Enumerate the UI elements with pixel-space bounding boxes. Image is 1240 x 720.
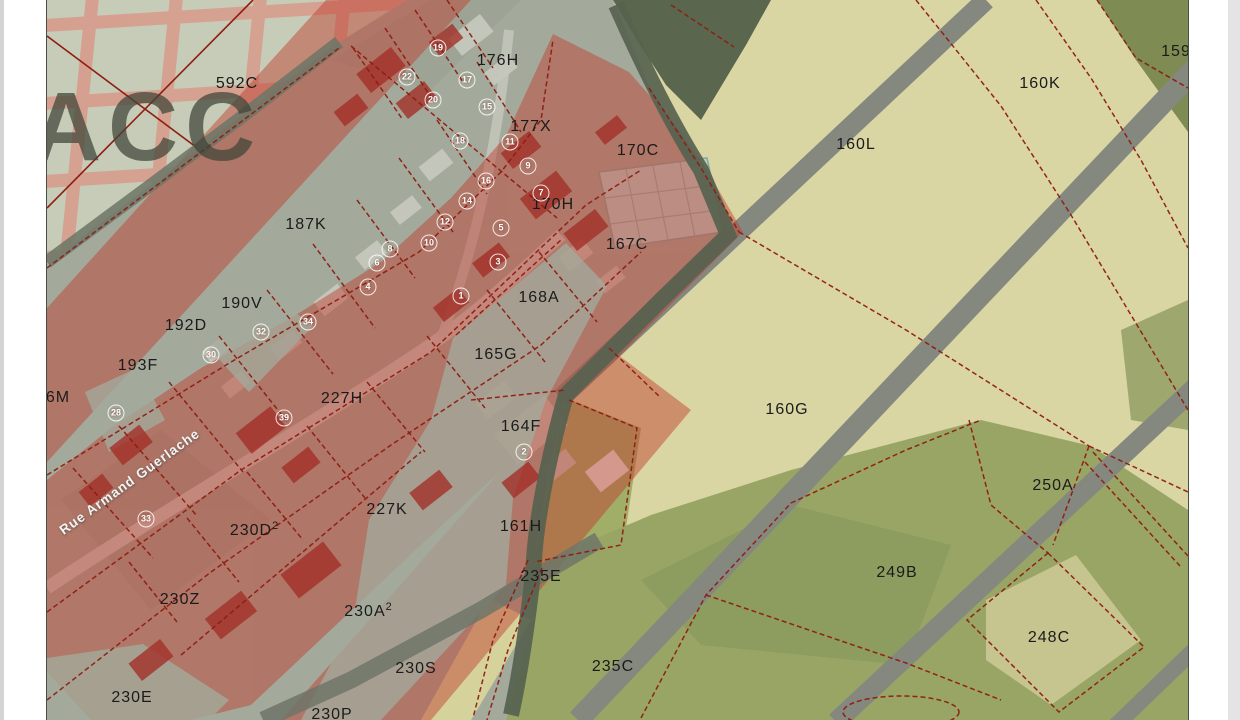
house-number-18: 18: [452, 133, 469, 150]
parcel-label-187K: 187K: [285, 217, 326, 233]
parcel-label-249B: 249B: [876, 565, 917, 581]
parcel-label-230P: 230P: [311, 707, 352, 720]
parcel-label-161H: 161H: [500, 519, 542, 535]
parcel-label-230A2: 230A2: [344, 602, 392, 620]
house-number-10: 10: [421, 235, 438, 252]
watermark-text: ACC: [46, 78, 262, 175]
parcel-label-235C: 235C: [592, 659, 634, 675]
parcel-label-160G: 160G: [765, 402, 808, 418]
house-number-22: 22: [399, 69, 416, 86]
parcel-label-168A: 168A: [518, 290, 559, 306]
house-number-4: 4: [360, 279, 377, 296]
parcel-label-165G: 165G: [474, 347, 517, 363]
parcel-label-592C: 592C: [216, 76, 258, 92]
page-right-margin: [1228, 0, 1240, 720]
house-number-39: 39: [276, 410, 293, 427]
house-number-34: 34: [300, 314, 317, 331]
house-number-12: 12: [437, 214, 454, 231]
parcel-label-190V: 190V: [221, 296, 262, 312]
house-number-17: 17: [459, 72, 476, 89]
house-number-3: 3: [490, 254, 507, 271]
house-number-6: 6: [369, 255, 386, 272]
house-number-30: 30: [203, 347, 220, 364]
parcel-label-164F: 164F: [501, 419, 541, 435]
parcel-label-227H: 227H: [321, 391, 363, 407]
parcel-label-230E: 230E: [111, 690, 152, 706]
page-left-margin: [0, 0, 4, 720]
parcel-label-167C: 167C: [606, 237, 648, 253]
parcel-label-227K: 227K: [366, 502, 407, 518]
parcel-label-177X: 177X: [510, 119, 551, 135]
parcel-label-235E: 235E: [520, 569, 561, 585]
parcel-label-230Z: 230Z: [160, 592, 200, 608]
parcel-label-248C: 248C: [1028, 630, 1070, 646]
house-number-11: 11: [502, 134, 519, 151]
map-page: ACC Rue Armand Guerlache 592C176H177X170…: [0, 0, 1240, 720]
house-number-1: 1: [453, 288, 470, 305]
map-viewport[interactable]: ACC Rue Armand Guerlache 592C176H177X170…: [46, 0, 1189, 720]
house-number-9: 9: [520, 158, 537, 175]
house-number-32: 32: [253, 324, 270, 341]
parcel-label-176H: 176H: [477, 53, 519, 69]
parcel-label-160K: 160K: [1019, 76, 1060, 92]
house-number-20: 20: [425, 92, 442, 109]
parcel-label-193F: 193F: [118, 358, 158, 374]
house-number-5: 5: [493, 220, 510, 237]
house-number-7: 7: [533, 185, 550, 202]
house-number-19: 19: [430, 40, 447, 57]
house-number-33: 33: [138, 511, 155, 528]
parcel-label-160L: 160L: [836, 137, 876, 153]
house-number-8: 8: [382, 241, 399, 258]
parcel-label-250A: 250A: [1032, 478, 1073, 494]
house-number-28: 28: [108, 405, 125, 422]
house-number-14: 14: [459, 193, 476, 210]
parcel-label-6M: 6M: [46, 390, 70, 406]
parcel-label-230S: 230S: [395, 661, 436, 677]
house-number-16: 16: [478, 173, 495, 190]
house-number-15: 15: [479, 99, 496, 116]
parcel-label-170C: 170C: [617, 143, 659, 159]
parcel-label-230D2: 230D2: [230, 521, 278, 539]
parcel-label-192D: 192D: [165, 318, 207, 334]
parcel-label-159: 159: [1161, 44, 1189, 60]
house-number-2: 2: [516, 444, 533, 461]
